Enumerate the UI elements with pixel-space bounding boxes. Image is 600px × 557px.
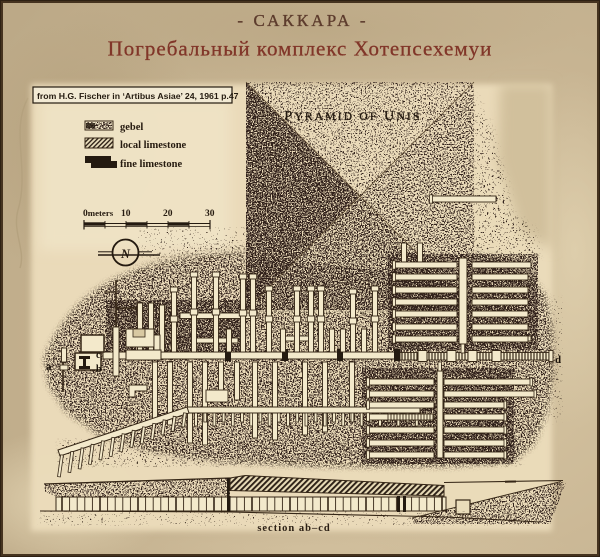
svg-text:local limestone: local limestone bbox=[120, 140, 187, 151]
svg-text:c: c bbox=[96, 350, 101, 361]
svg-text:Погребальный комплекс Хотепсех: Погребальный комплекс Хотепсехемуи bbox=[108, 37, 493, 61]
svg-text:- САККАРА -: - САККАРА - bbox=[237, 11, 368, 30]
svg-text:PYRAMID OF UNIS: PYRAMID OF UNIS bbox=[284, 109, 421, 124]
svg-text:20: 20 bbox=[163, 209, 173, 219]
svg-text:a: a bbox=[46, 361, 52, 373]
svg-text:N: N bbox=[120, 247, 131, 261]
svg-text:from H.G. Fischer in ‘Artibus: from H.G. Fischer in ‘Artibus Asiae’ 24,… bbox=[37, 91, 239, 101]
svg-text:10: 10 bbox=[121, 209, 131, 219]
svg-text:section ab–cd: section ab–cd bbox=[257, 523, 330, 534]
svg-text:gebel: gebel bbox=[120, 122, 143, 133]
svg-text:0meters: 0meters bbox=[83, 208, 114, 219]
svg-text:fine limestone: fine limestone bbox=[120, 159, 182, 170]
svg-text:b: b bbox=[96, 364, 102, 375]
svg-text:d: d bbox=[555, 354, 561, 366]
svg-text:30: 30 bbox=[205, 209, 215, 219]
